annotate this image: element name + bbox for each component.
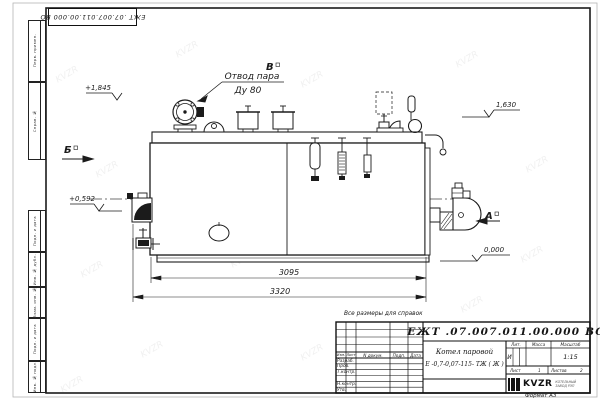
reference-note: Все размеры для справок bbox=[344, 311, 434, 319]
title-block-doc-number: ЕЖТ .07.007.011.00.000 ВО bbox=[423, 322, 590, 341]
role-nkontr: Н.контр. bbox=[337, 382, 356, 387]
margin-cell-perv-primen: Перв. примен. bbox=[28, 20, 46, 82]
company-logo: KVZR КОТЕЛЬНЫЙ ЗАВОД РЭП bbox=[508, 376, 588, 392]
margin-label: Взам. инв. № bbox=[32, 287, 37, 318]
margin-label: Подп. и дата bbox=[32, 216, 37, 246]
margin-label: Справ. № bbox=[32, 110, 37, 132]
sheet-value: 1 bbox=[538, 368, 541, 373]
dim-overall-length: 3320 bbox=[270, 287, 290, 296]
role-razrab: Разраб. bbox=[337, 359, 354, 364]
margin-label: Инв. № дубл. bbox=[32, 254, 37, 285]
mass-value bbox=[526, 348, 551, 366]
margin-label: Подп. и дата bbox=[32, 324, 37, 354]
mass-header: Масса bbox=[526, 341, 551, 348]
top-stamp-doc-number: ЕЖТ .07.007.011.00.000 ВО bbox=[40, 13, 145, 21]
margin-label: Перв. примен. bbox=[32, 34, 37, 67]
col-doc: N докум. bbox=[356, 352, 390, 358]
scale-header: Масштаб bbox=[551, 341, 590, 348]
elevation-ground: 0,000 bbox=[484, 246, 505, 254]
elevation-top-right: 1,630 bbox=[496, 101, 517, 109]
logo-caption-line2: ЗАВОД РЭП bbox=[555, 384, 576, 388]
view-label-b: Б bbox=[64, 145, 72, 156]
drawing-sheet: KVZRKVZRKVZRKVZRKVZRKVZRKVZRKVZRKVZRKVZR… bbox=[0, 0, 600, 400]
sheet-label: Лист bbox=[510, 368, 521, 373]
steam-valve bbox=[173, 100, 204, 132]
scale-value: 1:15 bbox=[551, 348, 590, 366]
logo-text: KVZR bbox=[523, 379, 552, 389]
role-prov: Пров. bbox=[337, 364, 350, 369]
logo-icon bbox=[508, 378, 521, 391]
role-utv: Утв. bbox=[337, 388, 346, 393]
lit-value: И bbox=[506, 348, 513, 366]
lit-header: Лит. bbox=[506, 341, 526, 348]
role-tkontr: Т.контр. bbox=[337, 370, 356, 375]
top-hatches bbox=[204, 106, 295, 132]
callout-line1: Отвод пара bbox=[225, 72, 280, 82]
margin-cell-vzam-inv: Взам. инв. № bbox=[28, 287, 46, 318]
elevation-steam-valve: +1,845 bbox=[85, 84, 111, 92]
product-name: Котел паровой bbox=[423, 345, 506, 359]
sheets-label: Листов bbox=[551, 368, 567, 373]
margin-cell-podp-data-1: Подп. и дата bbox=[28, 210, 46, 252]
margin-cell-sprav-no: Справ. № bbox=[28, 82, 46, 160]
sheets-value: 2 bbox=[580, 368, 583, 373]
col-izm: Изм. bbox=[336, 352, 346, 358]
logo-caption: КОТЕЛЬНЫЙ ЗАВОД РЭП bbox=[555, 380, 576, 388]
manhole bbox=[209, 225, 229, 241]
callout-line2: Ду 80 bbox=[234, 86, 262, 96]
burner bbox=[430, 183, 481, 230]
margin-cell-inv-dubl: Инв. № дубл. bbox=[28, 252, 46, 287]
margin-cell-inv-podl: Инв. № подл. bbox=[28, 361, 46, 393]
view-label-a: А bbox=[484, 211, 493, 222]
margin-cell-podp-data-2: Подп. и дата bbox=[28, 318, 46, 361]
col-list: Лист bbox=[346, 352, 356, 358]
top-stamp: ЕЖТ .07.007.011.00.000 ВО bbox=[48, 8, 137, 26]
col-sign: Подп. bbox=[390, 352, 408, 358]
safety-valve bbox=[376, 92, 403, 132]
format-label: Формат А3 bbox=[525, 393, 585, 400]
product-designation: Е -0,7-0,07-115- ТЖ ( Ж ) bbox=[423, 358, 506, 370]
elevation-feed: +0,592 bbox=[69, 195, 95, 203]
margin-label: Инв. № подл. bbox=[32, 361, 37, 392]
dim-inner-length: 3095 bbox=[279, 268, 299, 277]
col-date: Дата bbox=[408, 352, 423, 358]
